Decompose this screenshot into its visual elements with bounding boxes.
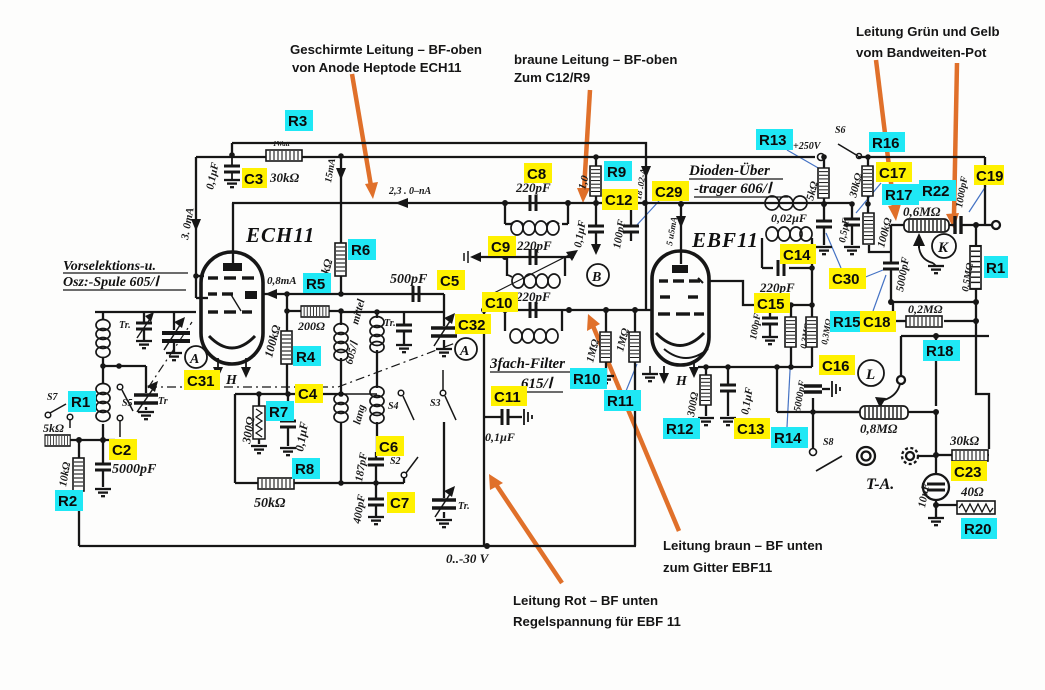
svg-text:C19: C19 — [976, 168, 1004, 185]
svg-text:S7: S7 — [47, 392, 59, 403]
svg-text:0..-30 V: 0..-30 V — [446, 551, 490, 566]
svg-text:0,1µF: 0,1µF — [485, 430, 515, 444]
svg-text:0,2MΩ: 0,2MΩ — [908, 302, 943, 316]
svg-text:C2: C2 — [112, 442, 131, 459]
svg-text:C10: C10 — [485, 295, 513, 312]
svg-text:R15: R15 — [833, 314, 861, 331]
svg-text:Leitung braun – BF unten: Leitung braun – BF unten — [663, 538, 823, 553]
svg-text:R17: R17 — [885, 187, 913, 204]
svg-text:L: L — [865, 367, 875, 383]
svg-text:C17: C17 — [879, 165, 907, 182]
svg-text:C8: C8 — [527, 166, 546, 183]
svg-text:200Ω: 200Ω — [297, 319, 325, 333]
svg-text:C6: C6 — [379, 439, 398, 456]
svg-text:C4: C4 — [298, 386, 318, 403]
svg-text:500pF: 500pF — [390, 272, 428, 287]
svg-text:R22: R22 — [922, 183, 950, 200]
svg-text:Tr.: Tr. — [119, 320, 131, 331]
svg-text:R10: R10 — [573, 371, 601, 388]
svg-text:0,8mA: 0,8mA — [267, 275, 297, 287]
svg-text:R3: R3 — [288, 113, 307, 130]
svg-text:220pF: 220pF — [516, 238, 552, 253]
svg-text:220pF: 220pF — [515, 289, 551, 304]
svg-text:5000pF: 5000pF — [112, 462, 157, 477]
svg-text:Leitung Grün und Gelb: Leitung Grün und Gelb — [856, 24, 1000, 39]
svg-text:Leitung Rot – BF unten: Leitung Rot – BF unten — [513, 593, 658, 608]
svg-text:220pF: 220pF — [759, 280, 795, 295]
svg-text:R1: R1 — [71, 394, 90, 411]
svg-text:Regelspannung für EBF 11: Regelspannung für EBF 11 — [513, 614, 681, 629]
svg-text:C30: C30 — [832, 271, 860, 288]
svg-text:S2: S2 — [390, 456, 401, 467]
svg-text:R12: R12 — [666, 421, 694, 438]
svg-text:R11: R11 — [607, 393, 634, 410]
svg-text:Zum C12/R9: Zum C12/R9 — [514, 70, 590, 85]
svg-text:40Ω: 40Ω — [960, 484, 984, 499]
svg-text:C23: C23 — [954, 464, 982, 481]
svg-text:30kΩ: 30kΩ — [949, 433, 980, 448]
svg-text:ECH11: ECH11 — [245, 223, 315, 247]
svg-text:R16: R16 — [872, 135, 900, 152]
svg-text:S8: S8 — [823, 437, 834, 448]
svg-text:5kΩ: 5kΩ — [43, 421, 64, 435]
svg-text:T-A.: T-A. — [866, 476, 894, 493]
svg-text:A: A — [189, 352, 199, 367]
svg-text:C14: C14 — [783, 247, 811, 264]
svg-text:H: H — [225, 373, 238, 388]
svg-text:C13: C13 — [737, 421, 765, 438]
svg-text:C11: C11 — [494, 389, 521, 406]
svg-text:Vorselektions-u.: Vorselektions-u. — [63, 259, 156, 274]
svg-text:R14: R14 — [774, 430, 802, 447]
svg-text:Tr.: Tr. — [384, 318, 396, 329]
svg-text:C12: C12 — [605, 192, 633, 209]
svg-text:0,02µF: 0,02µF — [771, 211, 807, 225]
svg-text:R18: R18 — [926, 343, 954, 360]
svg-text:C32: C32 — [458, 317, 486, 334]
svg-text:C16: C16 — [822, 358, 850, 375]
svg-text:C9: C9 — [491, 239, 510, 256]
svg-text:C29: C29 — [655, 184, 683, 201]
svg-text:braune Leitung – BF-oben: braune Leitung – BF-oben — [514, 52, 677, 67]
svg-text:0,6MΩ: 0,6MΩ — [903, 204, 941, 219]
svg-text:C15: C15 — [757, 296, 785, 313]
svg-text:S6: S6 — [835, 125, 846, 136]
svg-text:Tr: Tr — [158, 396, 168, 407]
svg-text:zum Gitter EBF11: zum Gitter EBF11 — [663, 560, 772, 575]
svg-text:C5: C5 — [440, 273, 459, 290]
svg-text:30kΩ: 30kΩ — [269, 170, 300, 185]
svg-text:H: H — [675, 374, 688, 389]
svg-text:+250V: +250V — [793, 141, 822, 152]
svg-text:vom Bandweiten-Pot: vom Bandweiten-Pot — [856, 45, 987, 60]
svg-text:R1: R1 — [986, 260, 1005, 277]
svg-text:S3: S3 — [430, 398, 441, 409]
svg-text:R13: R13 — [759, 132, 787, 149]
svg-text:K: K — [937, 240, 949, 256]
svg-text:0,8MΩ: 0,8MΩ — [860, 421, 898, 436]
svg-text:von Anode Heptode ECH11: von Anode Heptode ECH11 — [292, 60, 462, 75]
svg-text:C18: C18 — [863, 314, 891, 331]
svg-text:-trager 606/Ⅰ: -trager 606/Ⅰ — [694, 181, 774, 197]
svg-text:S4: S4 — [388, 401, 399, 412]
svg-text:2,3 . 0–nA: 2,3 . 0–nA — [388, 186, 432, 197]
svg-text:R8: R8 — [295, 461, 314, 478]
svg-text:C3: C3 — [244, 171, 263, 188]
svg-text:R6: R6 — [351, 242, 370, 259]
svg-text:R9: R9 — [607, 164, 626, 181]
svg-text:EBF11: EBF11 — [691, 228, 759, 252]
svg-text:R5: R5 — [306, 276, 325, 293]
svg-text:A: A — [459, 344, 469, 359]
svg-text:3fach-Filter: 3fach-Filter — [489, 356, 565, 372]
svg-text:C7: C7 — [390, 495, 409, 512]
svg-text:R4: R4 — [296, 349, 316, 366]
svg-text:Dioden-Über: Dioden-Über — [688, 162, 770, 179]
svg-text:Geschirmte Leitung – BF-oben: Geschirmte Leitung – BF-oben — [290, 42, 482, 57]
svg-text:S5: S5 — [122, 398, 133, 409]
svg-text:Osz:-Spule 605/Ⅰ: Osz:-Spule 605/Ⅰ — [63, 275, 160, 290]
svg-text:C31: C31 — [187, 373, 215, 390]
svg-text:1Watt: 1Watt — [273, 140, 291, 148]
svg-text:R20: R20 — [964, 521, 992, 538]
svg-text:50kΩ: 50kΩ — [254, 496, 286, 511]
svg-text:B: B — [591, 270, 601, 285]
svg-text:Tr.: Tr. — [458, 501, 470, 512]
svg-text:R7: R7 — [269, 404, 288, 421]
svg-text:R2: R2 — [58, 493, 77, 510]
